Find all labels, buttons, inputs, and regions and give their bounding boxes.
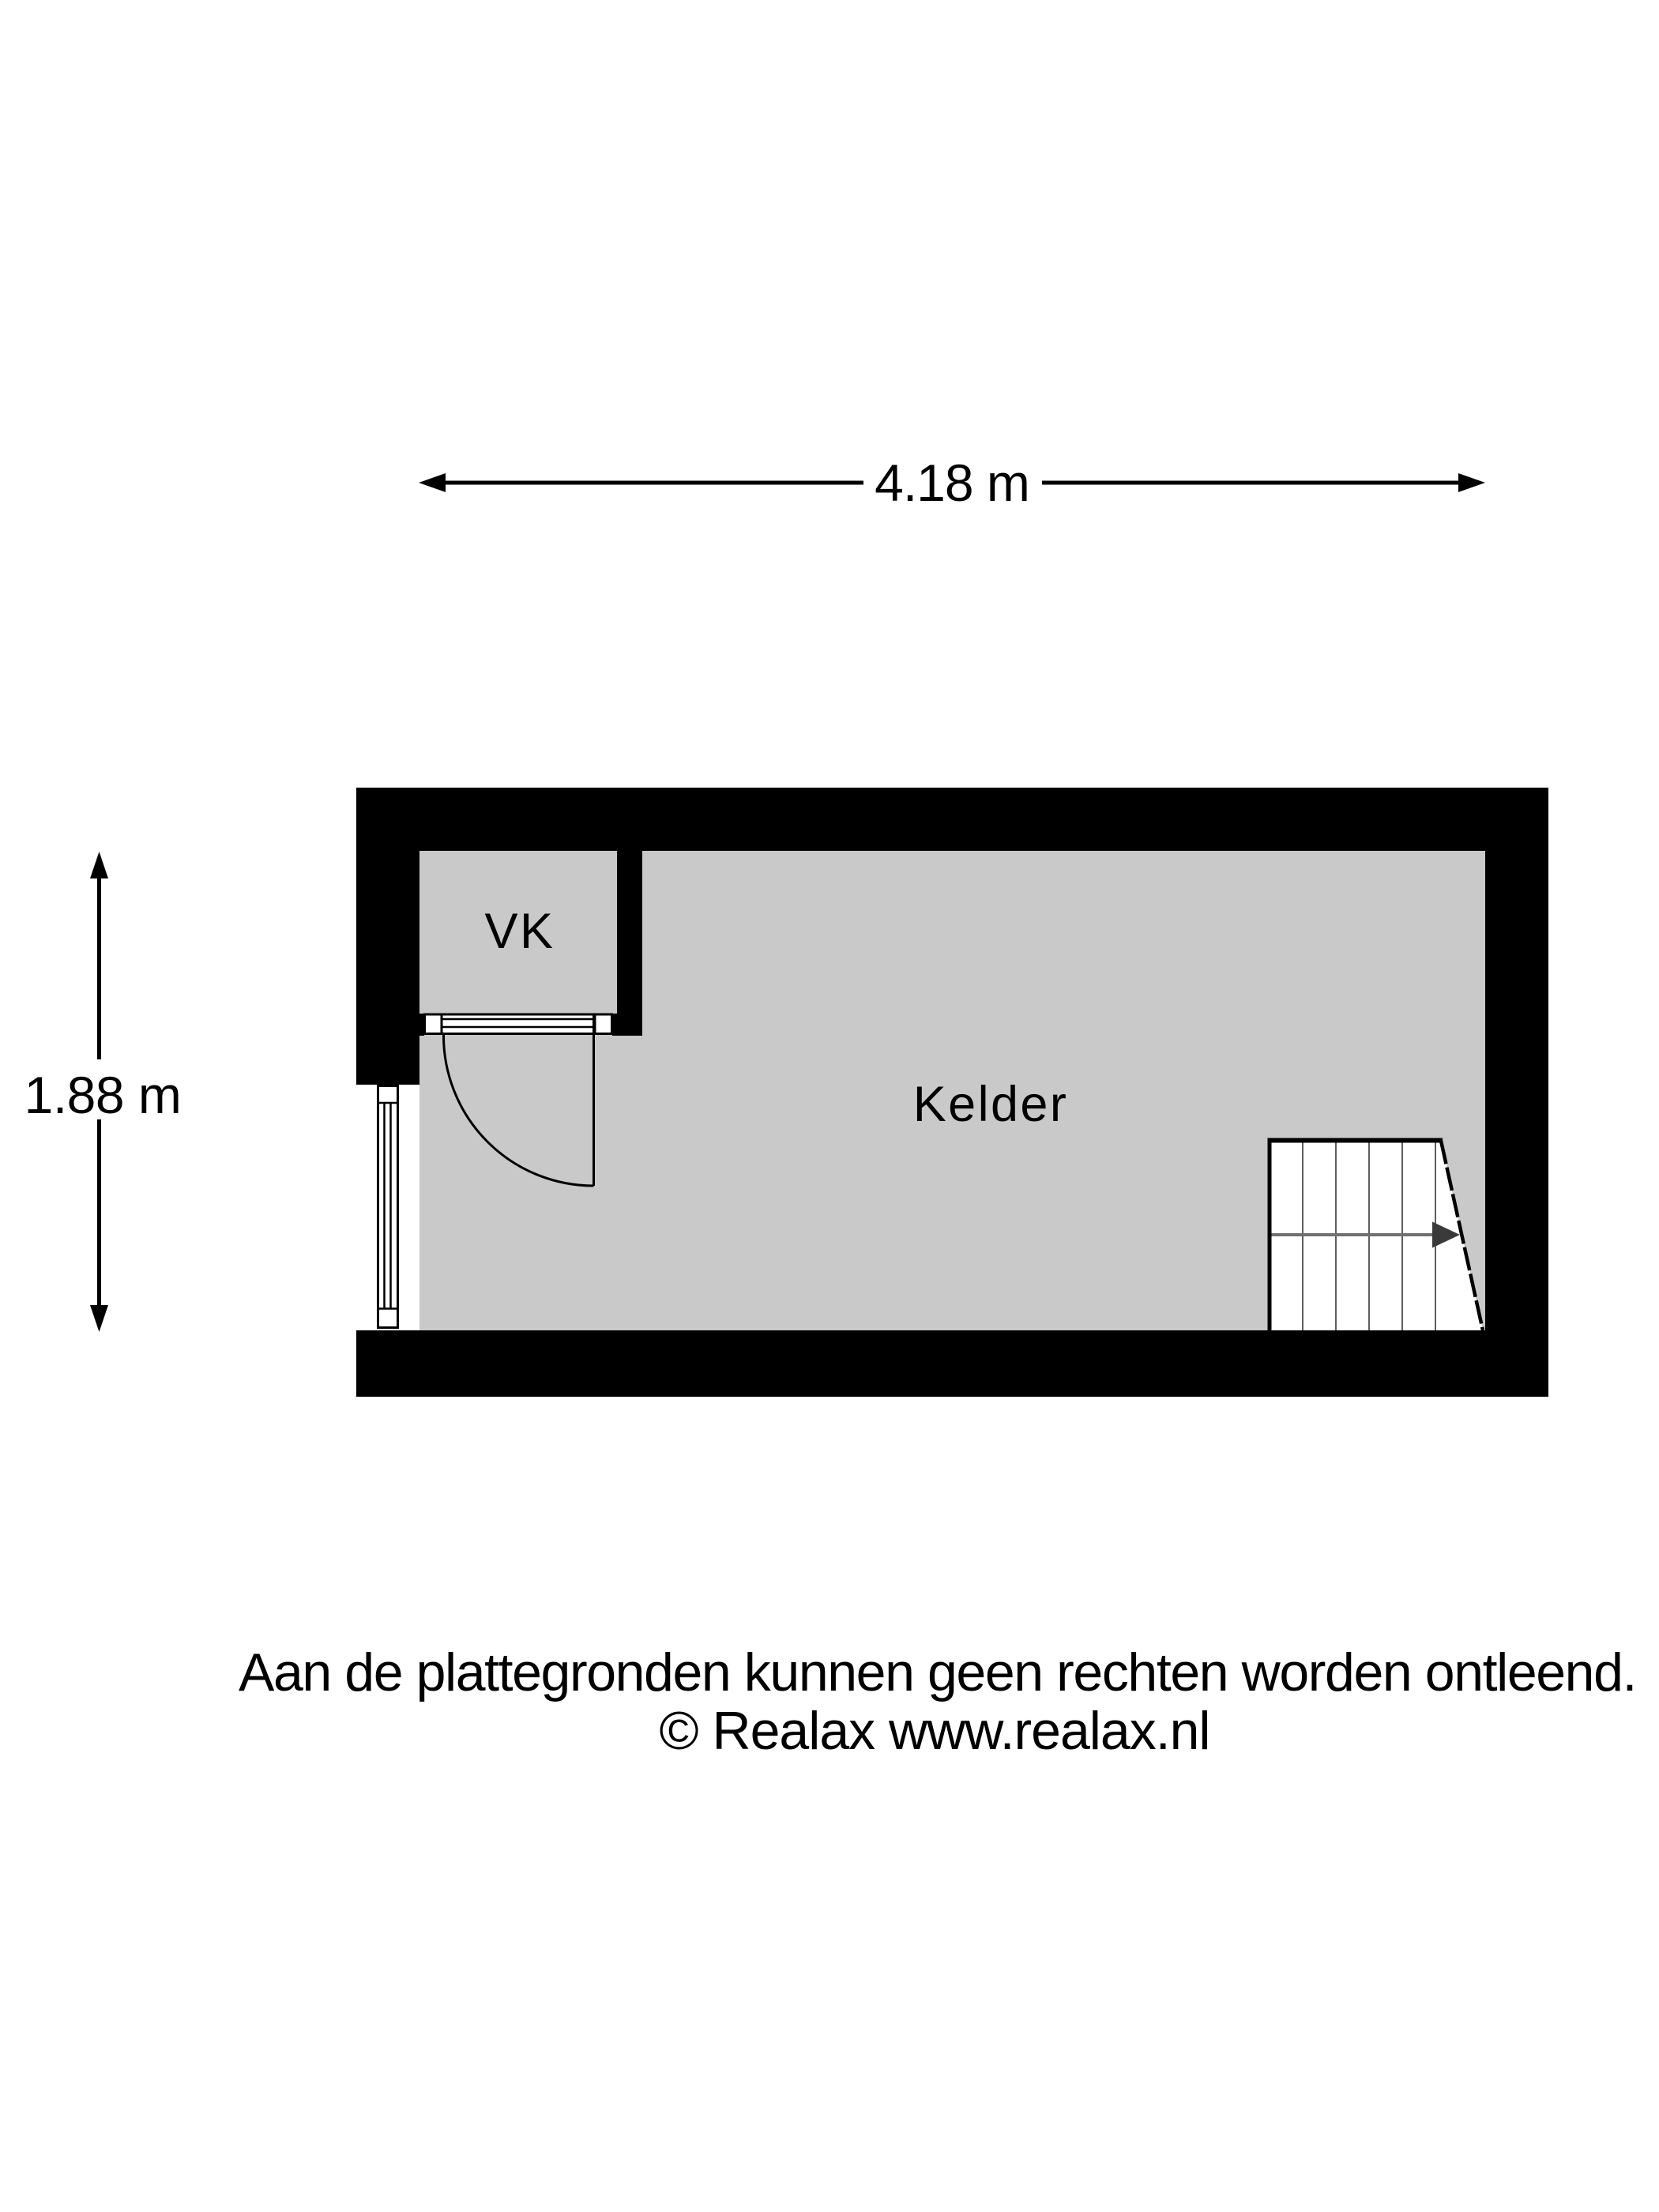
svg-text:Kelder: Kelder	[913, 1077, 1069, 1132]
svg-text:4.18 m: 4.18 m	[875, 453, 1029, 512]
svg-text:VK: VK	[484, 904, 555, 959]
svg-text:1.88 m: 1.88 m	[24, 1066, 182, 1124]
svg-text:Aan de plattegronden kunnen ge: Aan de plattegronden kunnen geen rechten…	[239, 1642, 1636, 1702]
svg-text:© Realax www.realax.nl: © Realax www.realax.nl	[659, 1701, 1209, 1761]
